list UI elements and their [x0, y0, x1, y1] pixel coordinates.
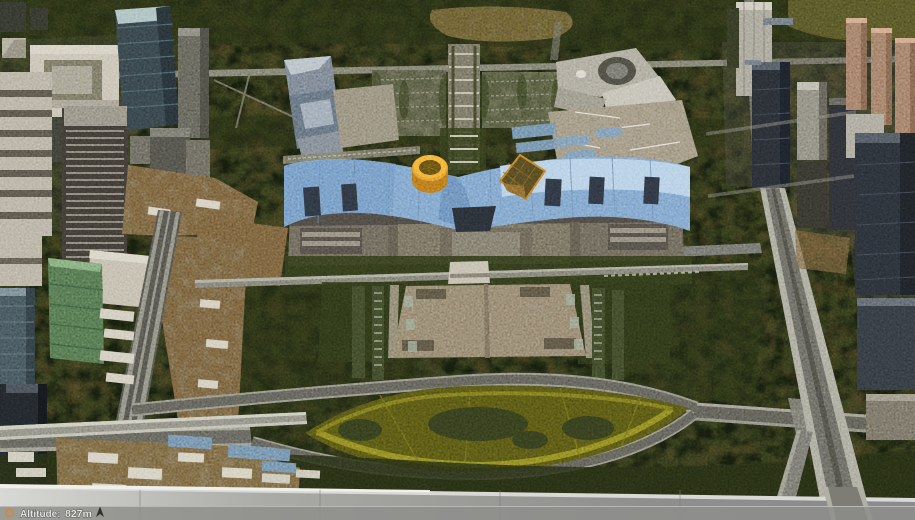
svg-text:827m: 827m — [65, 508, 92, 520]
svg-text:Altitude:: Altitude: — [20, 509, 61, 520]
